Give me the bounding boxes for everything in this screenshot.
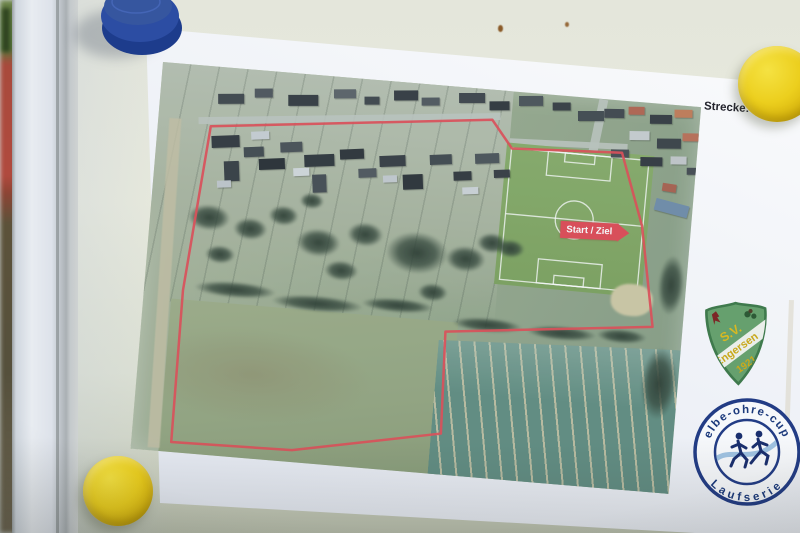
blue-magnet (92, 0, 188, 60)
start-ziel-text: Start / Ziel (566, 224, 612, 237)
start-ziel-label: Start / Ziel (560, 221, 619, 241)
rust-spot (498, 25, 503, 32)
cup-logo: elbe-ohre-cup Laufserie (689, 394, 800, 510)
board-frame-post (12, 0, 78, 533)
route-path (170, 95, 668, 481)
aerial-route-map: Start / Ziel (131, 62, 702, 494)
yellow-magnet-bottom-left (83, 456, 153, 526)
background-tree (2, 8, 10, 52)
club-shield-logo: S.V. Engersen 1921 (698, 299, 775, 390)
route-overlay (131, 62, 702, 494)
rust-spot (565, 22, 569, 27)
notice-board-photo: Start / Ziel Strecke: 1 km S.V. Engersen… (0, 0, 800, 533)
board-frame-seam (56, 0, 59, 533)
